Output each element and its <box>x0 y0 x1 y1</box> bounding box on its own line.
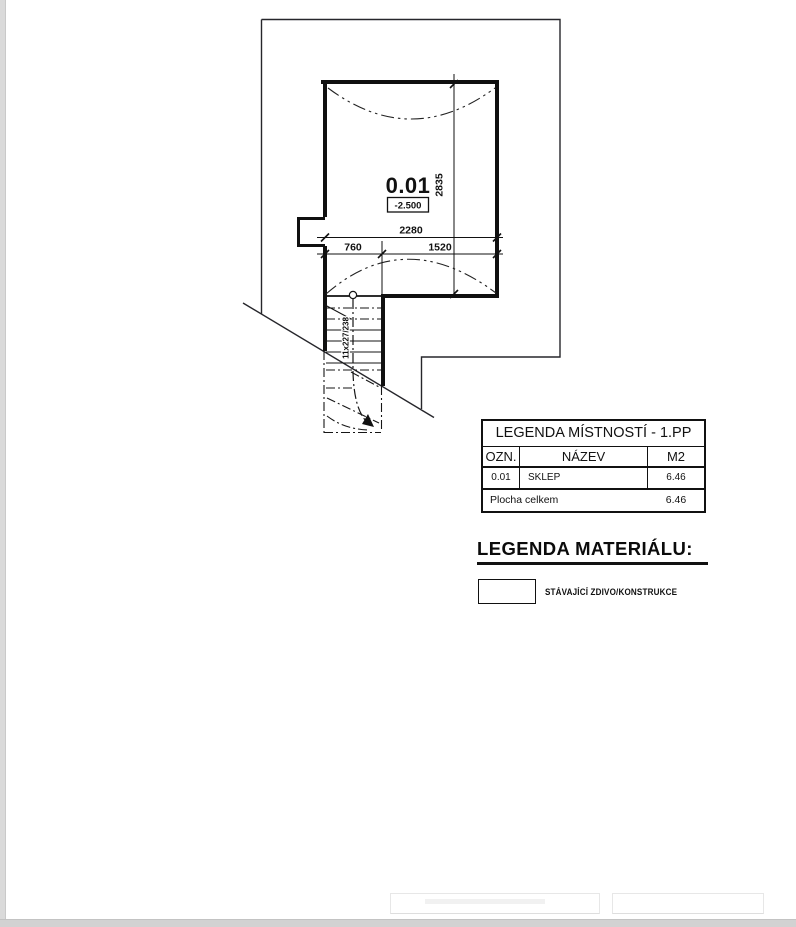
faint-text-smudge <box>425 899 545 904</box>
room-legend-header: OZN. NÁZEV M2 <box>483 447 704 468</box>
material-legend-underline <box>477 562 708 565</box>
material-label: STÁVAJÍCÍ ZDIVO/KONSTRUKCE <box>545 587 677 598</box>
staircase: 11x227/238 <box>324 291 382 433</box>
stair-dimension-label: 11x227/238 <box>342 317 351 359</box>
room-label: 0.01 -2.500 <box>386 173 431 212</box>
room-elevation: -2.500 <box>395 201 422 212</box>
col-header-nazev: NÁZEV <box>520 447 648 466</box>
outer-boundary <box>243 20 560 418</box>
room-legend-title: LEGENDA MÍSTNOSTÍ - 1.PP <box>483 421 704 447</box>
page-edge-left <box>0 0 6 927</box>
dim-height: 2835 <box>434 173 446 197</box>
cell-room-area: 6.46 <box>648 468 704 488</box>
cell-room-name: SKLEP <box>520 468 648 488</box>
dim-left-width: 760 <box>344 242 362 254</box>
page-edge-bottom <box>0 919 796 927</box>
cutoff-titleblock-right <box>612 893 764 914</box>
footer-total-area: 6.46 <box>648 490 704 511</box>
cell-room-number: 0.01 <box>483 468 520 488</box>
dim-total-width: 2280 <box>399 225 423 237</box>
stair-break-mark <box>325 305 351 319</box>
table-footer-row: Plocha celkem 6.46 <box>483 490 704 511</box>
dim-right-width: 1520 <box>428 242 452 254</box>
stair-walking-line <box>349 291 374 427</box>
scanned-drawing-page: 11x227/238 <box>0 0 796 927</box>
material-legend-title: LEGENDA MATERIÁLU: <box>477 538 693 560</box>
material-swatch-existing <box>478 579 536 604</box>
col-header-ozn: OZN. <box>483 447 520 466</box>
col-header-m2: M2 <box>648 447 704 466</box>
section-break-line <box>243 303 434 418</box>
table-row: 0.01 SKLEP 6.46 <box>483 468 704 490</box>
footer-label: Plocha celkem <box>483 490 648 511</box>
room-number: 0.01 <box>386 173 431 198</box>
room-legend-table: LEGENDA MÍSTNOSTÍ - 1.PP OZN. NÁZEV M2 0… <box>481 419 706 513</box>
